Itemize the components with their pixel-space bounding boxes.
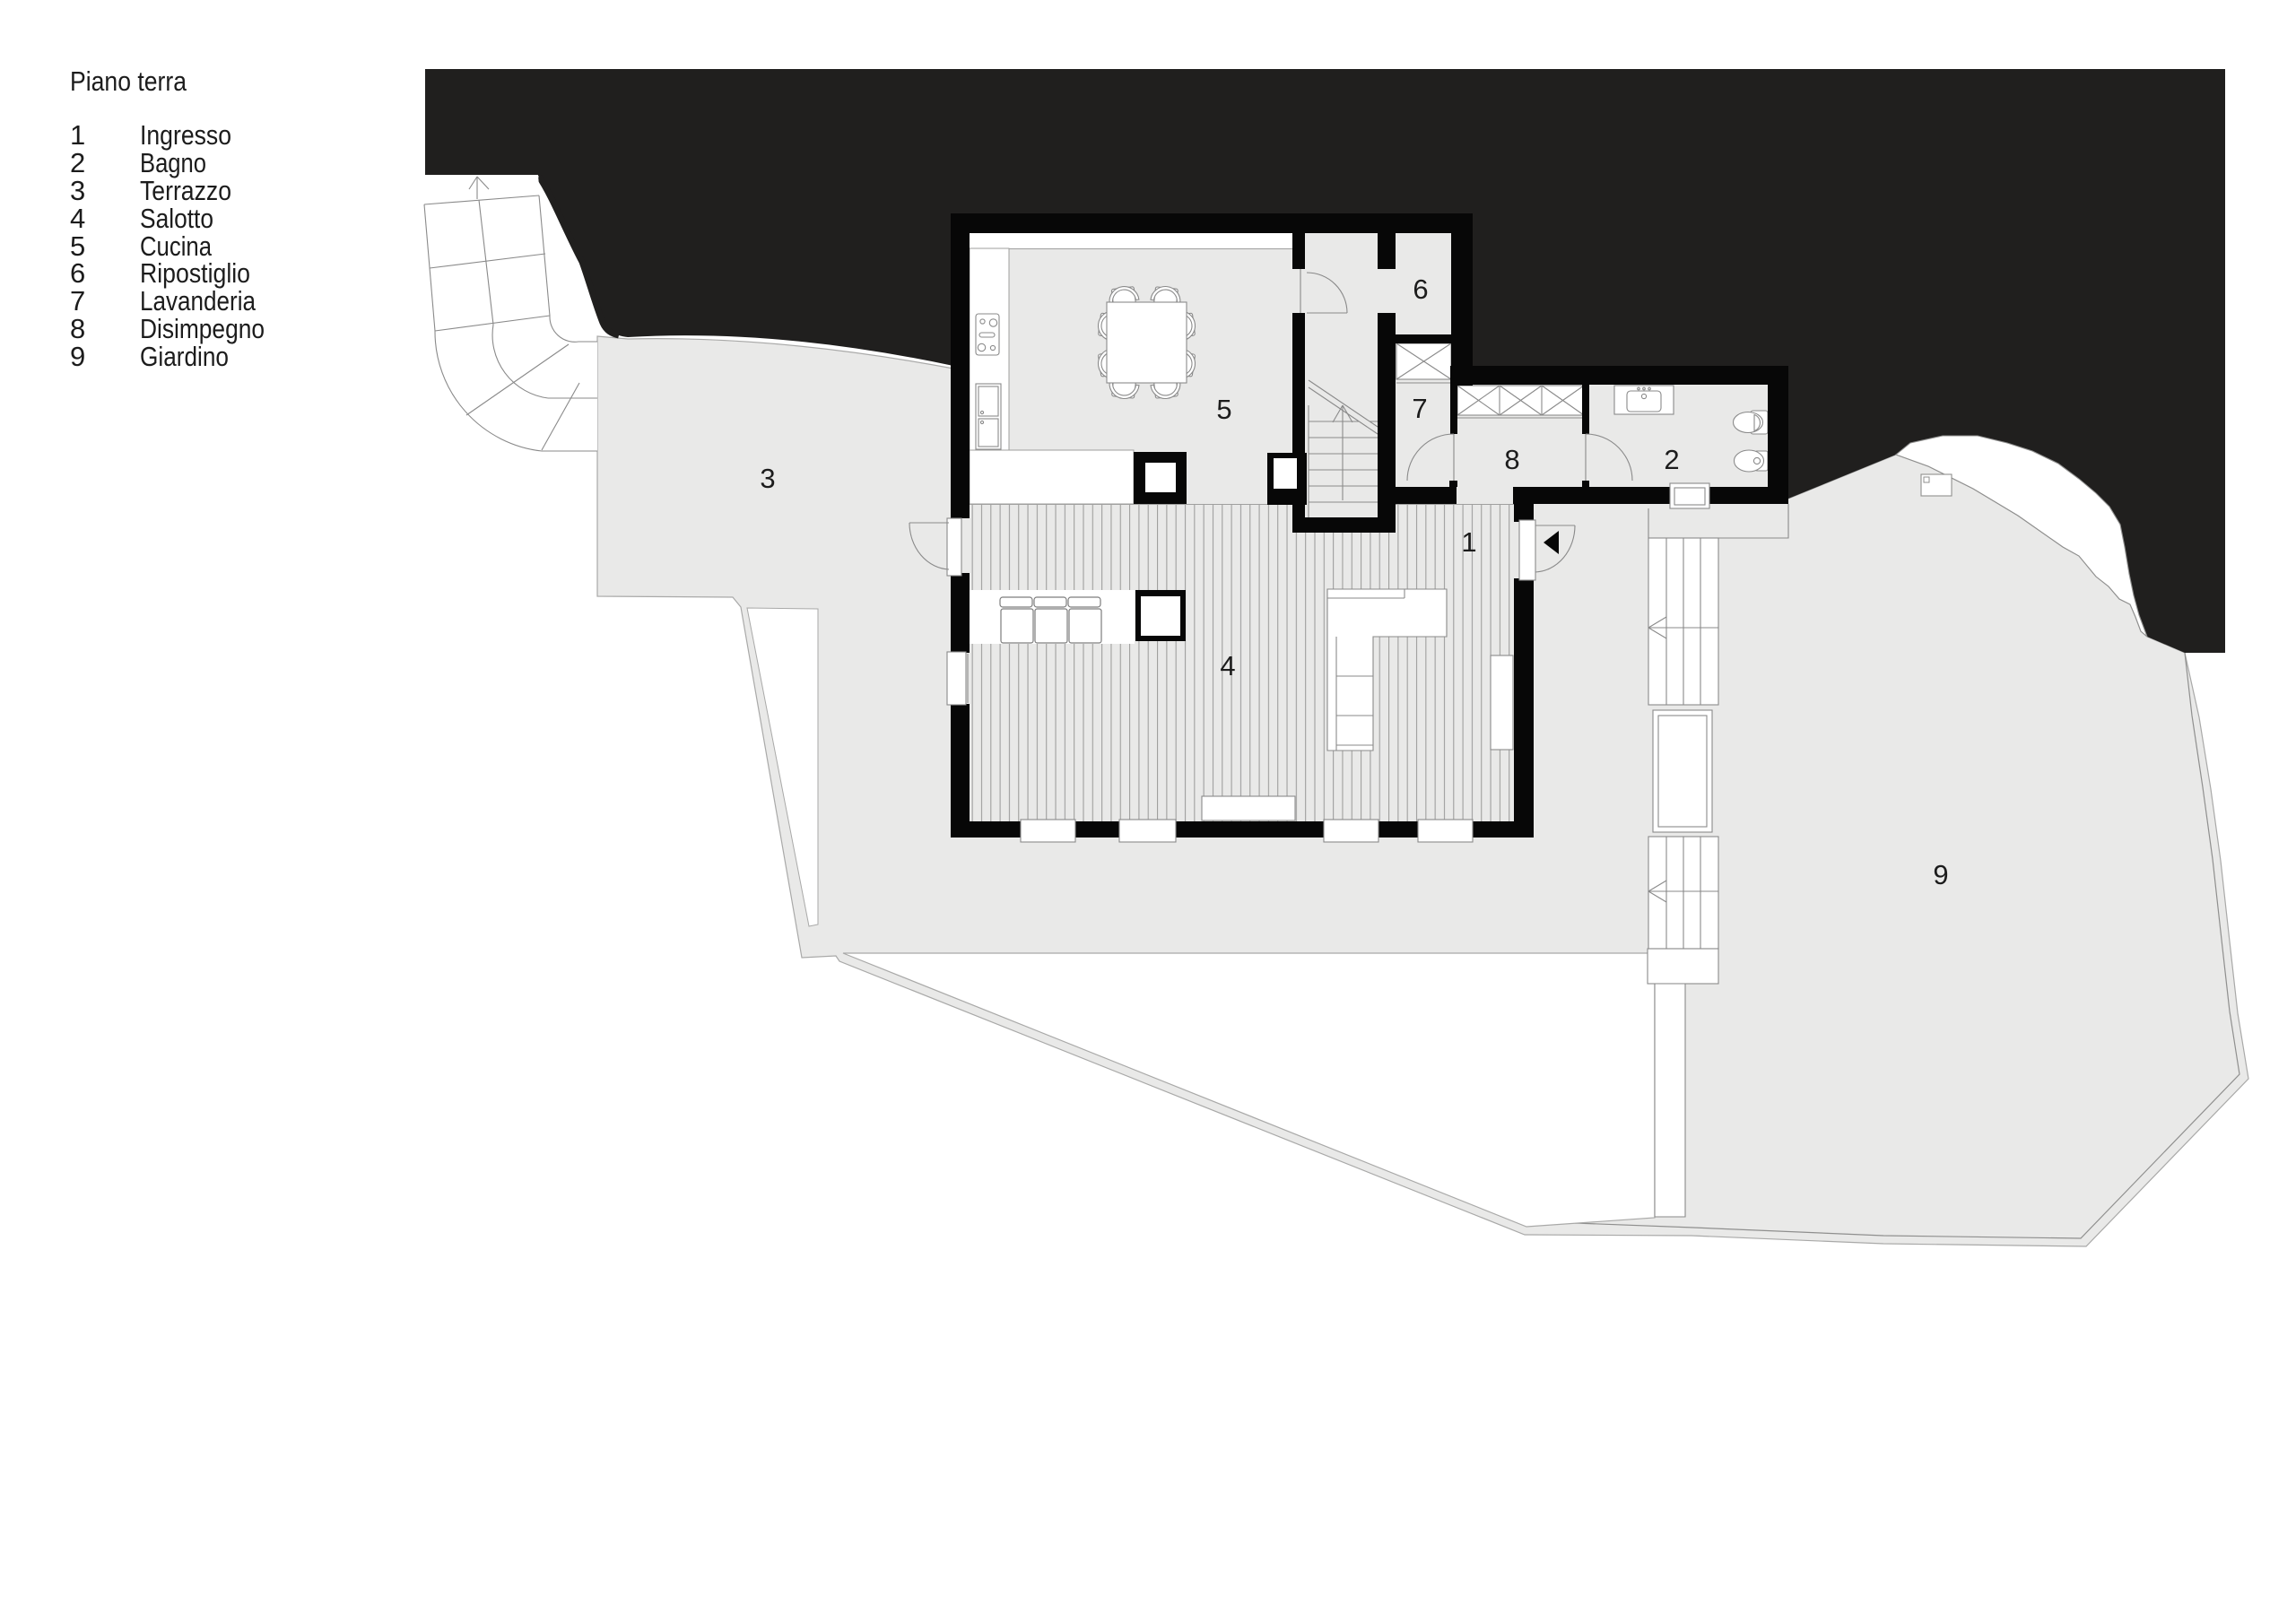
svg-text:8: 8	[70, 313, 85, 344]
svg-text:1: 1	[70, 119, 85, 151]
svg-text:6: 6	[1413, 273, 1428, 305]
svg-text:3: 3	[70, 175, 85, 206]
svg-text:4: 4	[1220, 650, 1235, 681]
svg-text:4: 4	[70, 203, 85, 234]
svg-text:2: 2	[1664, 444, 1679, 475]
svg-text:2: 2	[70, 147, 85, 178]
svg-text:Piano terra: Piano terra	[70, 65, 187, 97]
svg-text:Giardino: Giardino	[140, 341, 229, 372]
svg-text:7: 7	[70, 285, 85, 317]
svg-text:Terrazzo: Terrazzo	[140, 175, 231, 206]
svg-text:6: 6	[70, 257, 85, 289]
svg-text:5: 5	[1216, 394, 1231, 425]
svg-text:Lavanderia: Lavanderia	[140, 285, 257, 317]
svg-text:Bagno: Bagno	[140, 147, 206, 178]
svg-text:7: 7	[1412, 393, 1427, 424]
svg-text:Disimpegno: Disimpegno	[140, 313, 265, 344]
svg-text:Ingresso: Ingresso	[140, 119, 231, 151]
svg-text:1: 1	[1461, 526, 1476, 558]
svg-text:3: 3	[760, 463, 775, 494]
svg-text:Salotto: Salotto	[140, 203, 213, 234]
svg-text:9: 9	[1933, 859, 1948, 890]
svg-text:8: 8	[1504, 444, 1519, 475]
svg-text:Ripostiglio: Ripostiglio	[140, 257, 250, 289]
svg-text:9: 9	[70, 341, 85, 372]
